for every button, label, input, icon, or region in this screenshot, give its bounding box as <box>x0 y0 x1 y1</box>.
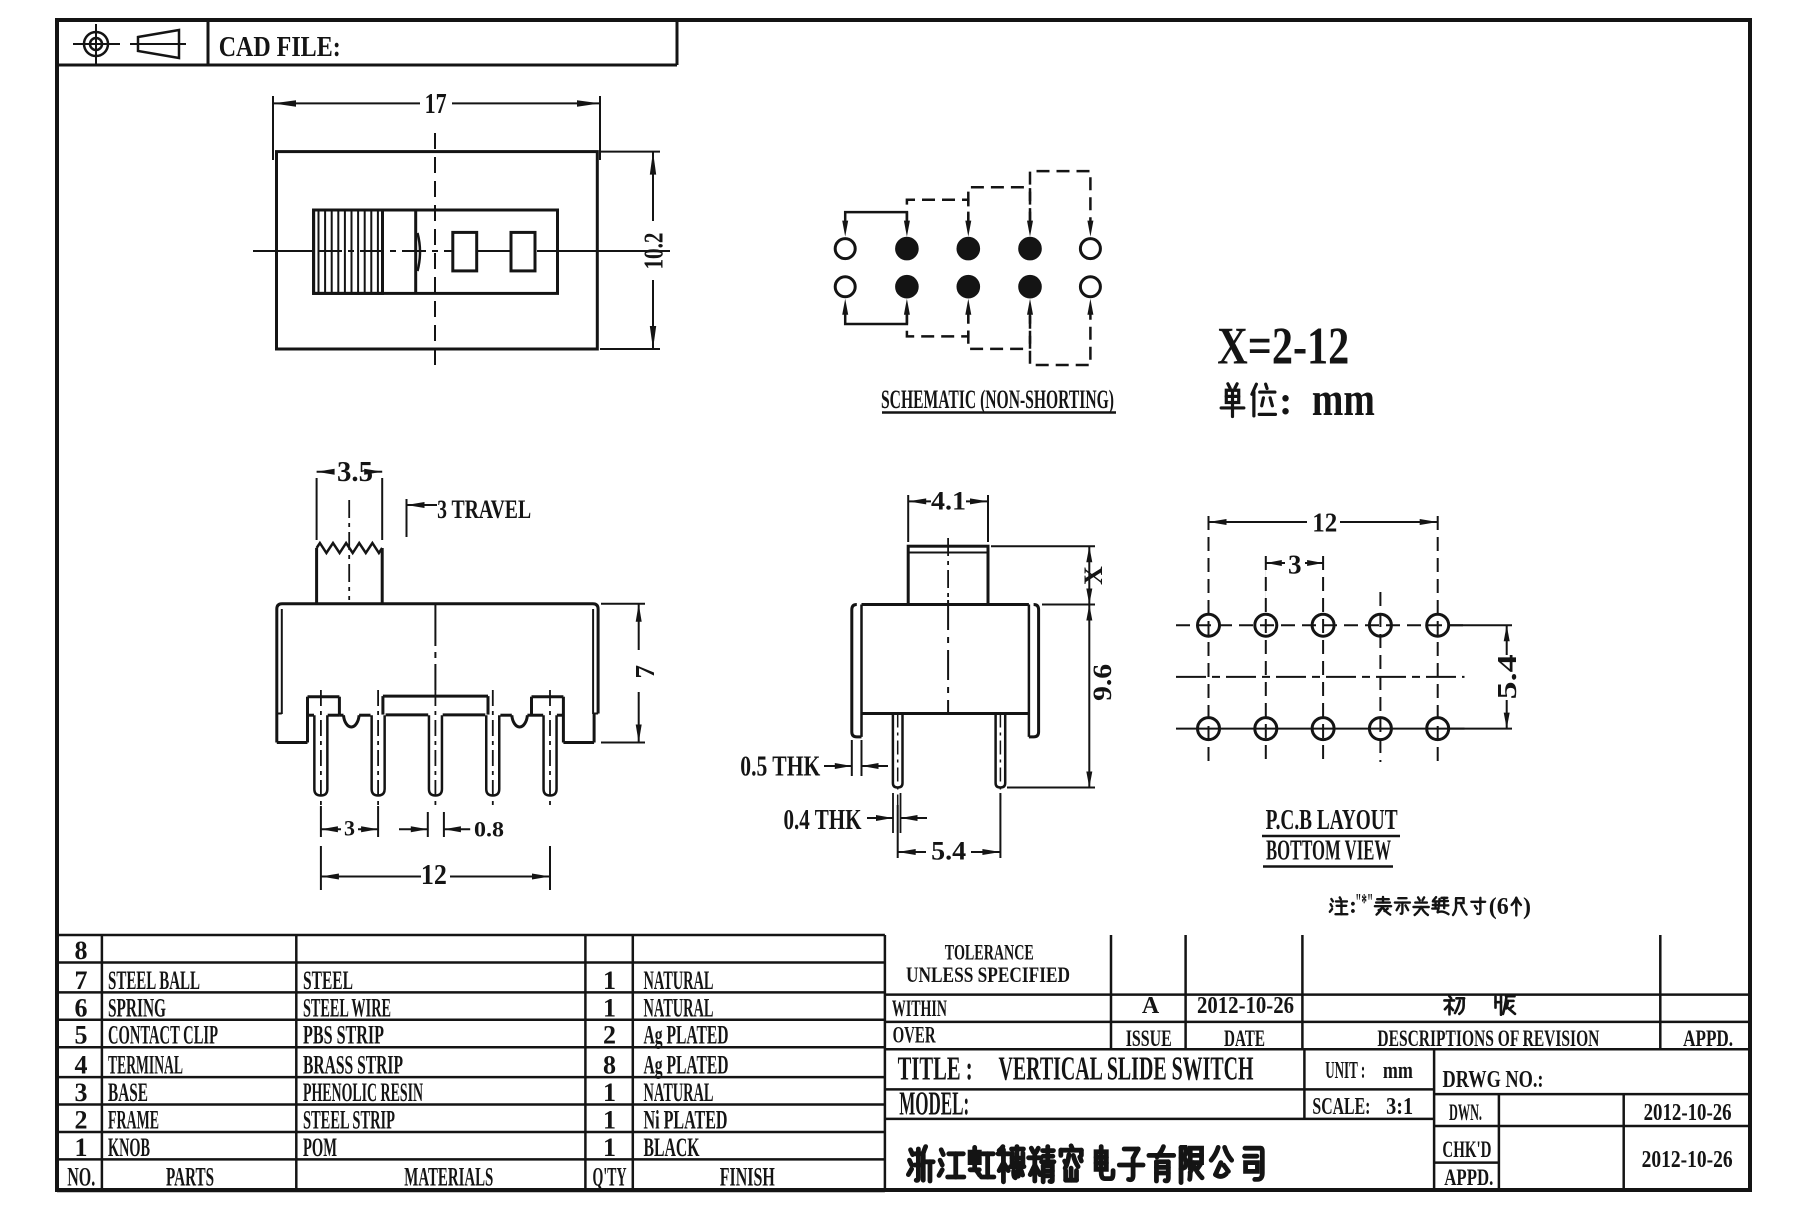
svg-text:BOTTOM VIEW: BOTTOM VIEW <box>1266 836 1391 867</box>
svg-text:NATURAL: NATURAL <box>644 1078 714 1107</box>
svg-text::: : <box>1279 378 1292 423</box>
svg-text:2012-10-26: 2012-10-26 <box>1644 1100 1732 1126</box>
svg-text:Ag PLATED: Ag PLATED <box>644 1051 729 1080</box>
svg-text:1: 1 <box>603 993 616 1022</box>
svg-text:BLACK: BLACK <box>644 1133 700 1162</box>
svg-text:"*": "*" <box>1355 890 1373 916</box>
svg-text:mm: mm <box>1383 1058 1413 1084</box>
svg-text:PHENOLIC RESIN: PHENOLIC RESIN <box>303 1078 423 1107</box>
svg-text:DATE: DATE <box>1224 1026 1265 1051</box>
svg-text:Q'TY: Q'TY <box>593 1163 627 1192</box>
svg-text:P.C.B LAYOUT: P.C.B LAYOUT <box>1266 805 1398 836</box>
svg-text:FINISH: FINISH <box>720 1163 775 1192</box>
svg-text:SPRING: SPRING <box>108 993 166 1022</box>
svg-text:2: 2 <box>603 1021 616 1050</box>
svg-text:3.5: 3.5 <box>337 457 373 488</box>
svg-text:CHK'D: CHK'D <box>1442 1137 1491 1162</box>
svg-text:4.1: 4.1 <box>931 487 966 516</box>
svg-text:CONTACT CLIP: CONTACT CLIP <box>108 1021 218 1050</box>
svg-text:10.2: 10.2 <box>639 233 669 270</box>
svg-text:Ni PLATED: Ni PLATED <box>644 1106 728 1135</box>
svg-text:0.5 THK: 0.5 THK <box>740 751 820 782</box>
svg-text:0.4 THK: 0.4 THK <box>784 805 862 836</box>
svg-text:VERTICAL SLIDE SWITCH: VERTICAL SLIDE SWITCH <box>999 1050 1254 1087</box>
svg-text:7: 7 <box>630 665 660 679</box>
svg-text:FRAME: FRAME <box>108 1106 159 1135</box>
svg-text:): ) <box>1523 894 1531 920</box>
svg-text:UNLESS SPECIFIED: UNLESS SPECIFIED <box>906 962 1070 987</box>
svg-text:3: 3 <box>1288 549 1302 579</box>
svg-text:TERMINAL: TERMINAL <box>108 1051 183 1080</box>
svg-text:SCHEMATIC (NON-SHORTING): SCHEMATIC (NON-SHORTING) <box>881 385 1114 414</box>
svg-text:1: 1 <box>603 966 616 995</box>
svg-text:8: 8 <box>603 1051 616 1080</box>
svg-text:12: 12 <box>421 860 447 891</box>
svg-text:X: X <box>1079 566 1108 585</box>
svg-text:6: 6 <box>75 993 88 1022</box>
svg-text:TOLERANCE: TOLERANCE <box>945 940 1034 965</box>
svg-text:NATURAL: NATURAL <box>644 966 714 995</box>
svg-text:mm: mm <box>1312 373 1375 426</box>
svg-text:STEEL BALL: STEEL BALL <box>108 966 200 995</box>
svg-text:1: 1 <box>603 1078 616 1107</box>
svg-text:A: A <box>1142 993 1160 1019</box>
svg-text:OVER: OVER <box>893 1022 936 1047</box>
svg-text:DRWG NO.:: DRWG NO.: <box>1443 1067 1544 1093</box>
svg-text:0.8: 0.8 <box>474 816 504 841</box>
svg-text:2: 2 <box>75 1106 88 1135</box>
svg-text:APPD.: APPD. <box>1683 1026 1733 1051</box>
svg-text:3:1: 3:1 <box>1386 1094 1413 1120</box>
svg-text:ISSUE: ISSUE <box>1126 1026 1172 1051</box>
svg-text:DWN.: DWN. <box>1449 1100 1482 1125</box>
svg-text:SCALE:: SCALE: <box>1312 1094 1370 1120</box>
svg-text:1: 1 <box>603 1106 616 1135</box>
svg-text:CAD FILE:: CAD FILE: <box>219 31 341 63</box>
svg-text:3: 3 <box>75 1078 88 1107</box>
svg-text:3 TRAVEL: 3 TRAVEL <box>437 495 531 524</box>
svg-text:UNIT :: UNIT : <box>1325 1058 1365 1084</box>
svg-text:MODEL:: MODEL: <box>899 1086 969 1123</box>
svg-text:12: 12 <box>1312 508 1337 538</box>
svg-text:3: 3 <box>344 816 355 841</box>
svg-text:9.6: 9.6 <box>1088 664 1117 701</box>
svg-text:APPD.: APPD. <box>1444 1165 1493 1190</box>
svg-text:BRASS STRIP: BRASS STRIP <box>303 1051 403 1080</box>
svg-text:2012-10-26: 2012-10-26 <box>1642 1147 1733 1173</box>
svg-text:1: 1 <box>603 1133 616 1162</box>
svg-text:POM: POM <box>303 1133 337 1162</box>
svg-text:TITLE :: TITLE : <box>898 1050 973 1087</box>
svg-text:5: 5 <box>75 1021 88 1050</box>
svg-text:KNOB: KNOB <box>108 1133 150 1162</box>
svg-text:8: 8 <box>75 936 88 965</box>
svg-text:1: 1 <box>75 1133 88 1162</box>
svg-text:STEEL: STEEL <box>303 966 353 995</box>
svg-text:Ag PLATED: Ag PLATED <box>644 1021 729 1050</box>
svg-text:NO.: NO. <box>67 1163 95 1192</box>
svg-text:BASE: BASE <box>108 1078 148 1107</box>
svg-text:4: 4 <box>75 1051 88 1080</box>
svg-text:STEEL STRIP: STEEL STRIP <box>303 1106 395 1135</box>
svg-text:MATERIALS: MATERIALS <box>404 1163 493 1192</box>
svg-text:PARTS: PARTS <box>166 1163 214 1192</box>
svg-text:(6: (6 <box>1489 894 1509 920</box>
svg-text:STEEL WIRE: STEEL WIRE <box>303 993 391 1022</box>
svg-text:5.4: 5.4 <box>931 837 966 866</box>
svg-text:DESCRIPTIONS OF REVISION: DESCRIPTIONS OF REVISION <box>1377 1026 1599 1051</box>
svg-text:X=2-12: X=2-12 <box>1217 317 1349 375</box>
svg-text:2012-10-26: 2012-10-26 <box>1197 993 1294 1019</box>
svg-text:NATURAL: NATURAL <box>644 993 714 1022</box>
svg-text:WITHIN: WITHIN <box>892 996 947 1021</box>
svg-text:7: 7 <box>75 966 88 995</box>
svg-text:5.4: 5.4 <box>1492 654 1522 699</box>
svg-text:17: 17 <box>425 88 447 120</box>
svg-text:PBS STRIP: PBS STRIP <box>303 1021 384 1050</box>
